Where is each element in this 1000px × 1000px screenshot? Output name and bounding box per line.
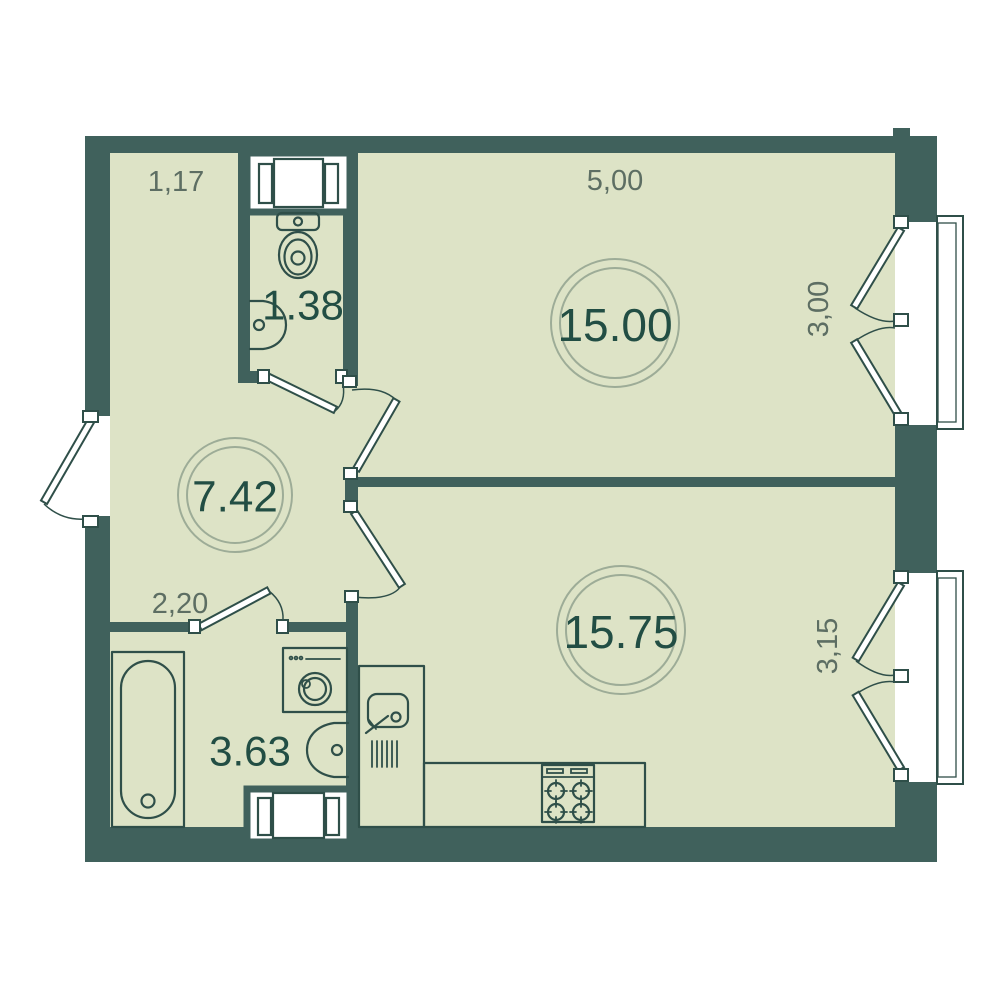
door-frame	[83, 411, 98, 422]
bathroom-area: 3.63	[209, 728, 291, 775]
window-sill-outer	[937, 571, 963, 784]
window-sill-outer	[937, 216, 963, 429]
dim-living-width: 5,00	[587, 165, 643, 197]
window-frame	[894, 216, 908, 228]
window-frame	[894, 314, 908, 326]
window-frame	[894, 670, 908, 682]
vent-shaft-cell	[325, 164, 338, 203]
wall-bathroom-top-right	[285, 622, 348, 632]
door-frame	[189, 620, 200, 633]
door-frame	[344, 501, 357, 512]
window-frame	[894, 413, 908, 425]
vent-shaft-bathroom	[247, 789, 350, 842]
door-frame	[277, 620, 288, 633]
wall-left-upper	[85, 136, 110, 416]
dim-living-depth: 3,00	[803, 281, 835, 337]
door-frame	[344, 468, 357, 479]
wall-top-right-notch	[893, 128, 910, 137]
wall-left-lower	[85, 516, 110, 862]
wall-living-kitchen-partition	[358, 477, 895, 487]
vent-shaft-cell	[326, 798, 339, 835]
hallway-area: 7.42	[192, 473, 278, 522]
vent-shaft-wc	[247, 153, 350, 212]
door-frame	[345, 591, 358, 602]
wall-right-top	[895, 136, 937, 222]
living-room-area: 15.00	[557, 299, 672, 351]
dim-hallway-bottom-width: 2,20	[152, 588, 208, 620]
wall-right-middle	[895, 425, 937, 573]
dim-kitchen-depth: 3,15	[812, 618, 844, 674]
door-frame	[343, 376, 356, 387]
wall-bathroom-top-left	[110, 622, 197, 632]
wall-bottom	[85, 827, 937, 862]
vent-shaft-cell	[259, 164, 272, 203]
dim-hallway-top-width: 1,17	[148, 166, 204, 198]
door-frame	[258, 370, 269, 383]
vent-shaft-cell	[258, 798, 271, 835]
floor-plan: 15.00 15.75 7.42 3.63 1.38 1,17 5,00 3,0…	[0, 0, 1000, 1000]
wall-right-bottom	[895, 782, 937, 862]
floor-plan-page: 15.00 15.75 7.42 3.63 1.38 1,17 5,00 3,0…	[0, 0, 1000, 1000]
vent-shaft-cell	[274, 159, 323, 207]
window-frame	[894, 769, 908, 781]
kitchen-area: 15.75	[563, 606, 678, 658]
wall-top	[85, 136, 937, 153]
vent-shaft-cell	[273, 793, 324, 838]
wc-area: 1.38	[262, 282, 344, 329]
door-frame	[83, 516, 98, 527]
window-frame	[894, 571, 908, 583]
